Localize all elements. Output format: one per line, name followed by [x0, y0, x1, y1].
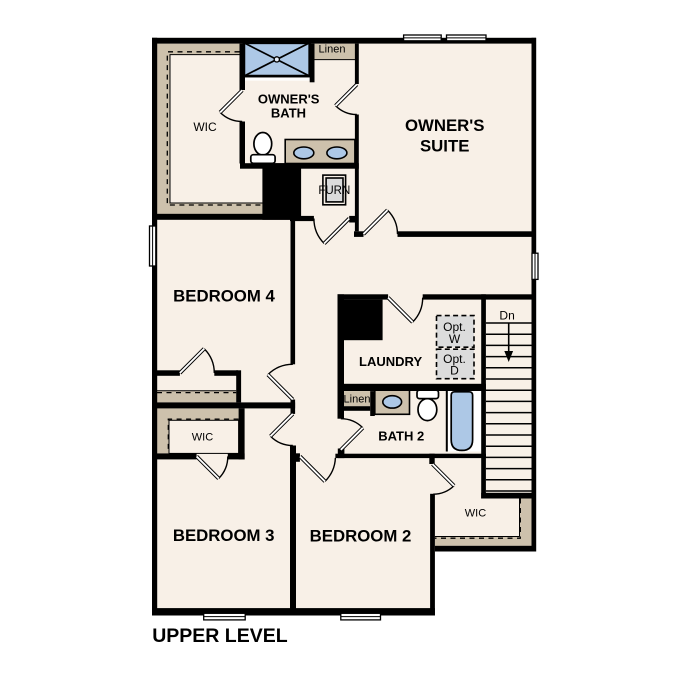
svg-text:WIC: WIC: [192, 432, 213, 444]
svg-text:FURN: FURN: [318, 185, 350, 197]
svg-text:UPPER LEVEL: UPPER LEVEL: [152, 625, 288, 647]
svg-text:BEDROOM 2: BEDROOM 2: [310, 526, 412, 545]
svg-text:WIC: WIC: [193, 120, 217, 134]
svg-text:OWNER'S: OWNER'S: [405, 116, 485, 135]
svg-text:Dn: Dn: [499, 309, 514, 323]
svg-text:W: W: [449, 332, 461, 346]
svg-text:BEDROOM 3: BEDROOM 3: [173, 526, 275, 545]
svg-text:LAUNDRY: LAUNDRY: [359, 354, 422, 369]
svg-text:OWNER'S: OWNER'S: [258, 92, 320, 107]
svg-text:BATH 2: BATH 2: [378, 428, 424, 443]
svg-text:BEDROOM 4: BEDROOM 4: [173, 287, 275, 306]
svg-text:Linen: Linen: [344, 394, 371, 406]
svg-text:D: D: [450, 364, 459, 378]
svg-text:WIC: WIC: [465, 508, 486, 520]
svg-text:SUITE: SUITE: [420, 137, 469, 156]
svg-text:Linen: Linen: [319, 44, 346, 56]
svg-text:BATH: BATH: [271, 106, 306, 121]
